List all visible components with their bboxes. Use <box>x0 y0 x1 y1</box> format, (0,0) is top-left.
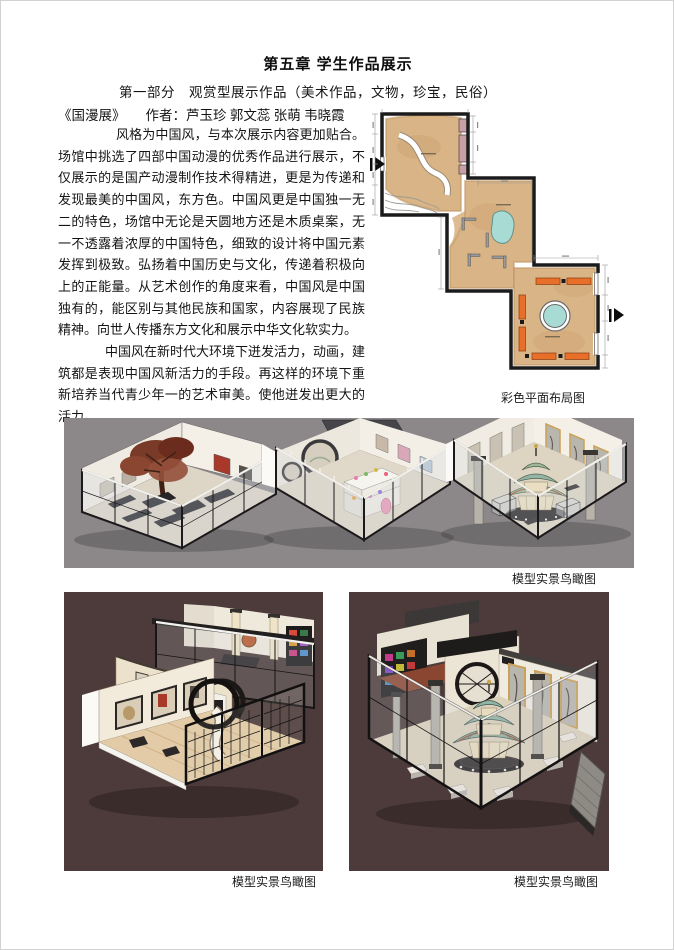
separator-wall-2 <box>446 440 454 482</box>
model-right-caption: 模型实景鸟瞰图 <box>501 873 611 890</box>
body-text: 风格为中国风，与本次展示内容更加贴合。场馆中挑选了四部中国动漫的优秀作品进行展示… <box>58 124 365 428</box>
model-left-drawing <box>64 592 323 871</box>
authors-text: 作者：芦玉珍 郭文蕊 张萌 韦晓霞 <box>146 108 345 123</box>
floor-plan-figure <box>369 107 641 387</box>
model-wide-drawing <box>64 418 634 568</box>
floor-plan-caption: 彩色平面布局图 <box>481 389 605 406</box>
display-cases <box>459 119 467 174</box>
model-wide-caption: 模型实景鸟瞰图 <box>499 570 609 587</box>
pond-shape <box>491 211 514 243</box>
model-left-caption: 模型实景鸟瞰图 <box>219 873 329 890</box>
model-left-figure <box>64 592 323 871</box>
floor-plan-drawing <box>369 107 641 387</box>
page-title: 第五章 学生作品展示 <box>1 53 674 74</box>
document-page: 第五章 学生作品展示 第一部分 观赏型展示作品（美术作品，文物，珍宝，民俗） 《… <box>0 0 674 950</box>
work-byline: 《国漫展》作者：芦玉珍 郭文蕊 张萌 韦晓霞 <box>58 104 345 124</box>
work-title: 《国漫展》 <box>58 108 126 123</box>
model-wide-figure <box>64 418 634 568</box>
paragraph-2: 中国风在新时代大环境下迸发活力，动画，建筑都是表现中国风新活力的手段。再这样的环… <box>58 341 365 428</box>
paragraph-1: 风格为中国风，与本次展示内容更加贴合。场馆中挑选了四部中国动漫的优秀作品进行展示… <box>58 124 365 341</box>
section-heading: 第一部分 观赏型展示作品（美术作品，文物，珍宝，民俗） <box>119 81 497 101</box>
model-right-figure <box>349 592 609 871</box>
model-right-drawing <box>349 592 609 871</box>
round-pool <box>540 301 570 331</box>
